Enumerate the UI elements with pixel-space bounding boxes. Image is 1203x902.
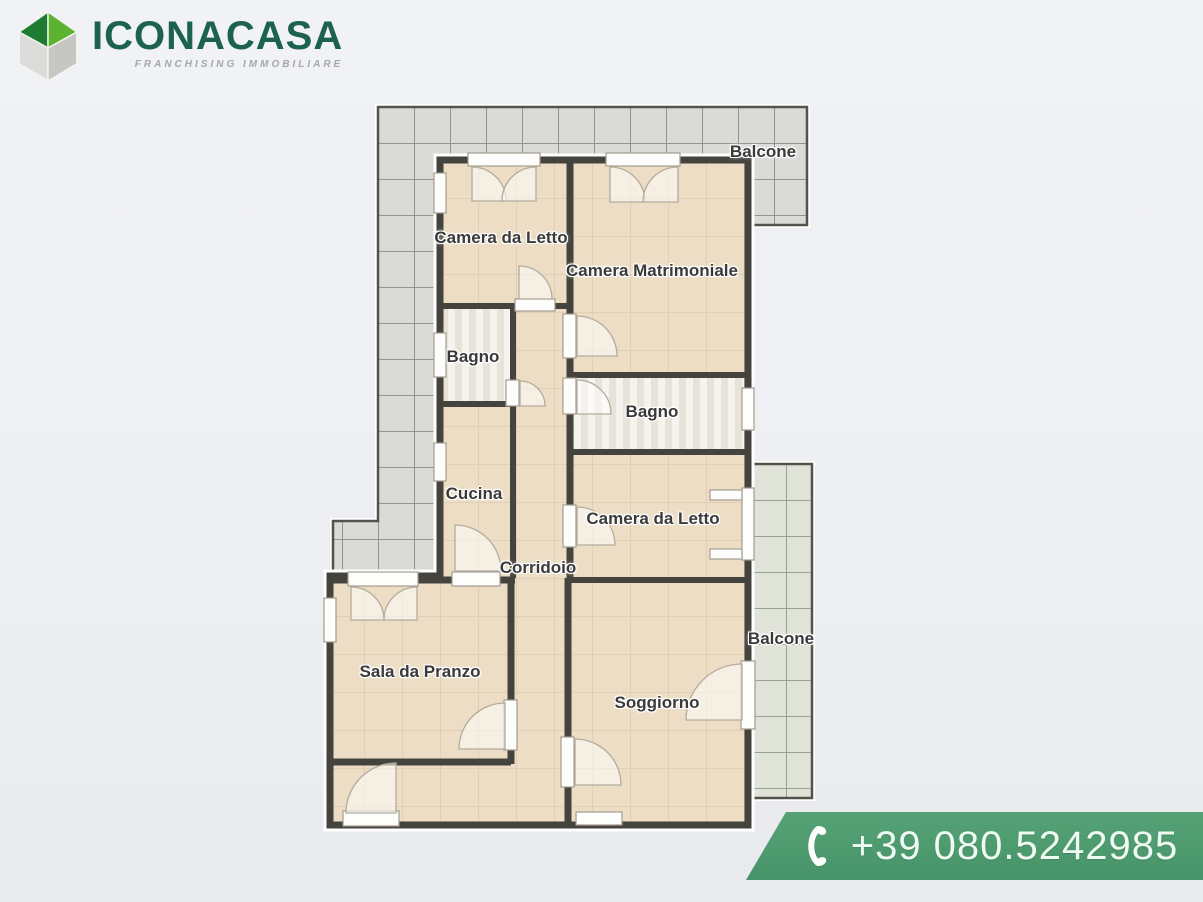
- room-label-balcone-top: Balcone: [730, 142, 796, 162]
- room-label-camera-da-letto-1: Camera da Letto: [434, 228, 567, 248]
- phone-handset-icon: [805, 825, 835, 867]
- room-label-balcone-right: Balcone: [748, 629, 814, 649]
- room-label-camera-matrimoniale: Camera Matrimoniale: [566, 261, 738, 281]
- listing-floorplan-image: ICONACASA FRANCHISING IMMOBILIARE: [0, 0, 1203, 902]
- phone-banner[interactable]: +39 080.5242985: [746, 812, 1203, 880]
- room-label-sala-da-pranzo: Sala da Pranzo: [360, 662, 481, 682]
- floorplan-drawing: [0, 0, 1203, 902]
- room-label-cucina: Cucina: [446, 484, 503, 504]
- room-label-bagno-1: Bagno: [447, 347, 500, 367]
- phone-number: +39 080.5242985: [851, 824, 1179, 869]
- room-label-camera-da-letto-2: Camera da Letto: [586, 509, 719, 529]
- room-label-soggiorno: Soggiorno: [615, 693, 700, 713]
- room-label-corridoio: Corridoio: [500, 558, 577, 578]
- room-label-bagno-2: Bagno: [626, 402, 679, 422]
